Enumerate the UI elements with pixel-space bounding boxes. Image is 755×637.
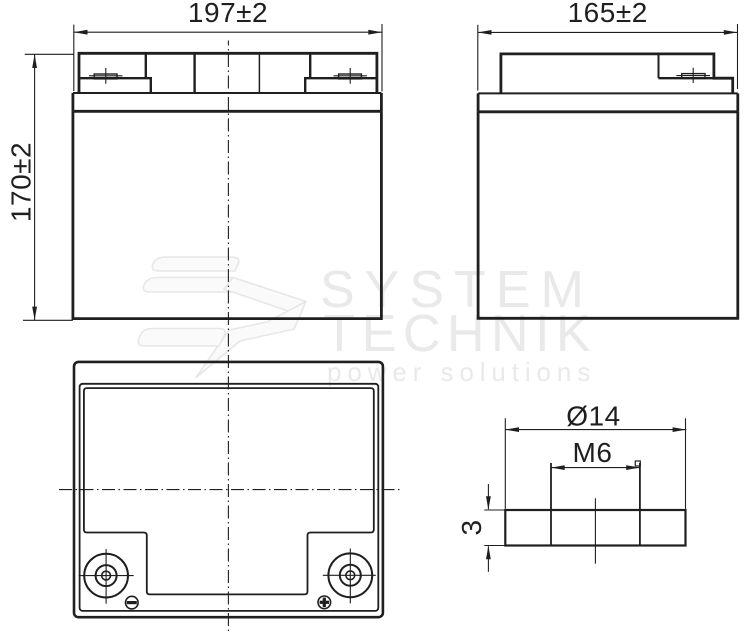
svg-text:3: 3: [456, 519, 487, 535]
svg-text:165±2: 165±2: [568, 0, 648, 28]
svg-text:197±2: 197±2: [188, 0, 268, 28]
svg-text:TECHNIK: TECHNIK: [324, 305, 598, 363]
svg-text:Ø14: Ø14: [566, 401, 620, 432]
svg-text:170±2: 170±2: [6, 142, 37, 222]
svg-text:M6: M6: [573, 437, 613, 468]
